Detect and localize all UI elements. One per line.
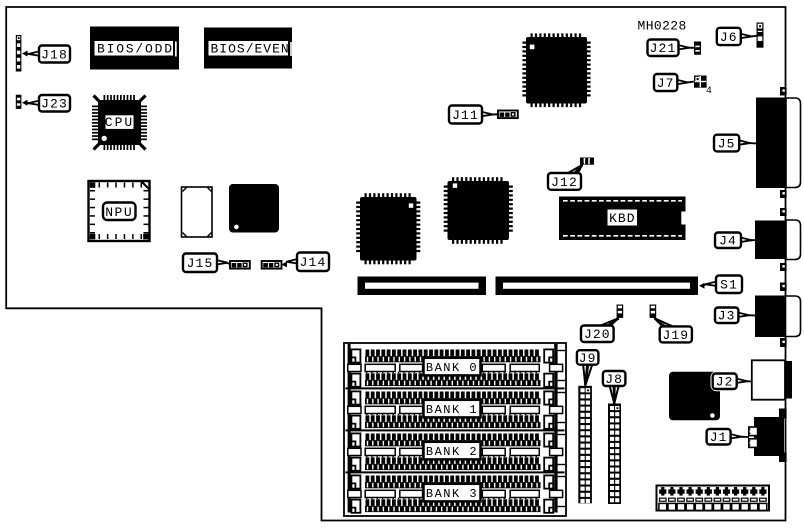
svg-text:J3: J3 [718,309,736,324]
svg-text:BIOS/EVEN: BIOS/EVEN [211,41,290,56]
svg-text:BIOS/ODD: BIOS/ODD [97,41,174,56]
svg-text:4: 4 [706,86,712,97]
svg-text:J9: J9 [579,351,597,366]
svg-text:BANK 1: BANK 1 [426,403,478,417]
svg-text:CPU: CPU [105,115,134,130]
svg-text:J8: J8 [605,372,623,387]
svg-text:BANK 3: BANK 3 [426,487,478,501]
svg-text:J5: J5 [718,136,736,151]
svg-text:BANK 0: BANK 0 [426,361,478,375]
svg-text:MH0228: MH0228 [638,19,687,34]
svg-text:J7: J7 [657,76,675,91]
svg-text:J12: J12 [551,175,578,190]
svg-text:J4: J4 [719,234,737,249]
svg-text:J2: J2 [716,375,734,390]
svg-text:J1: J1 [710,430,728,445]
svg-text:J18: J18 [41,47,68,62]
svg-text:J19: J19 [662,328,689,343]
svg-text:J11: J11 [452,108,479,123]
svg-text:NPU: NPU [105,205,133,220]
svg-text:J6: J6 [720,30,738,45]
svg-text:J20: J20 [584,327,611,342]
svg-text:J21: J21 [650,41,677,56]
svg-text:KBD: KBD [609,211,635,226]
svg-text:J14: J14 [300,255,327,270]
svg-text:J15: J15 [187,256,214,271]
svg-text:J23: J23 [41,97,68,112]
svg-text:S1: S1 [720,278,738,293]
svg-text:BANK 2: BANK 2 [426,445,478,459]
